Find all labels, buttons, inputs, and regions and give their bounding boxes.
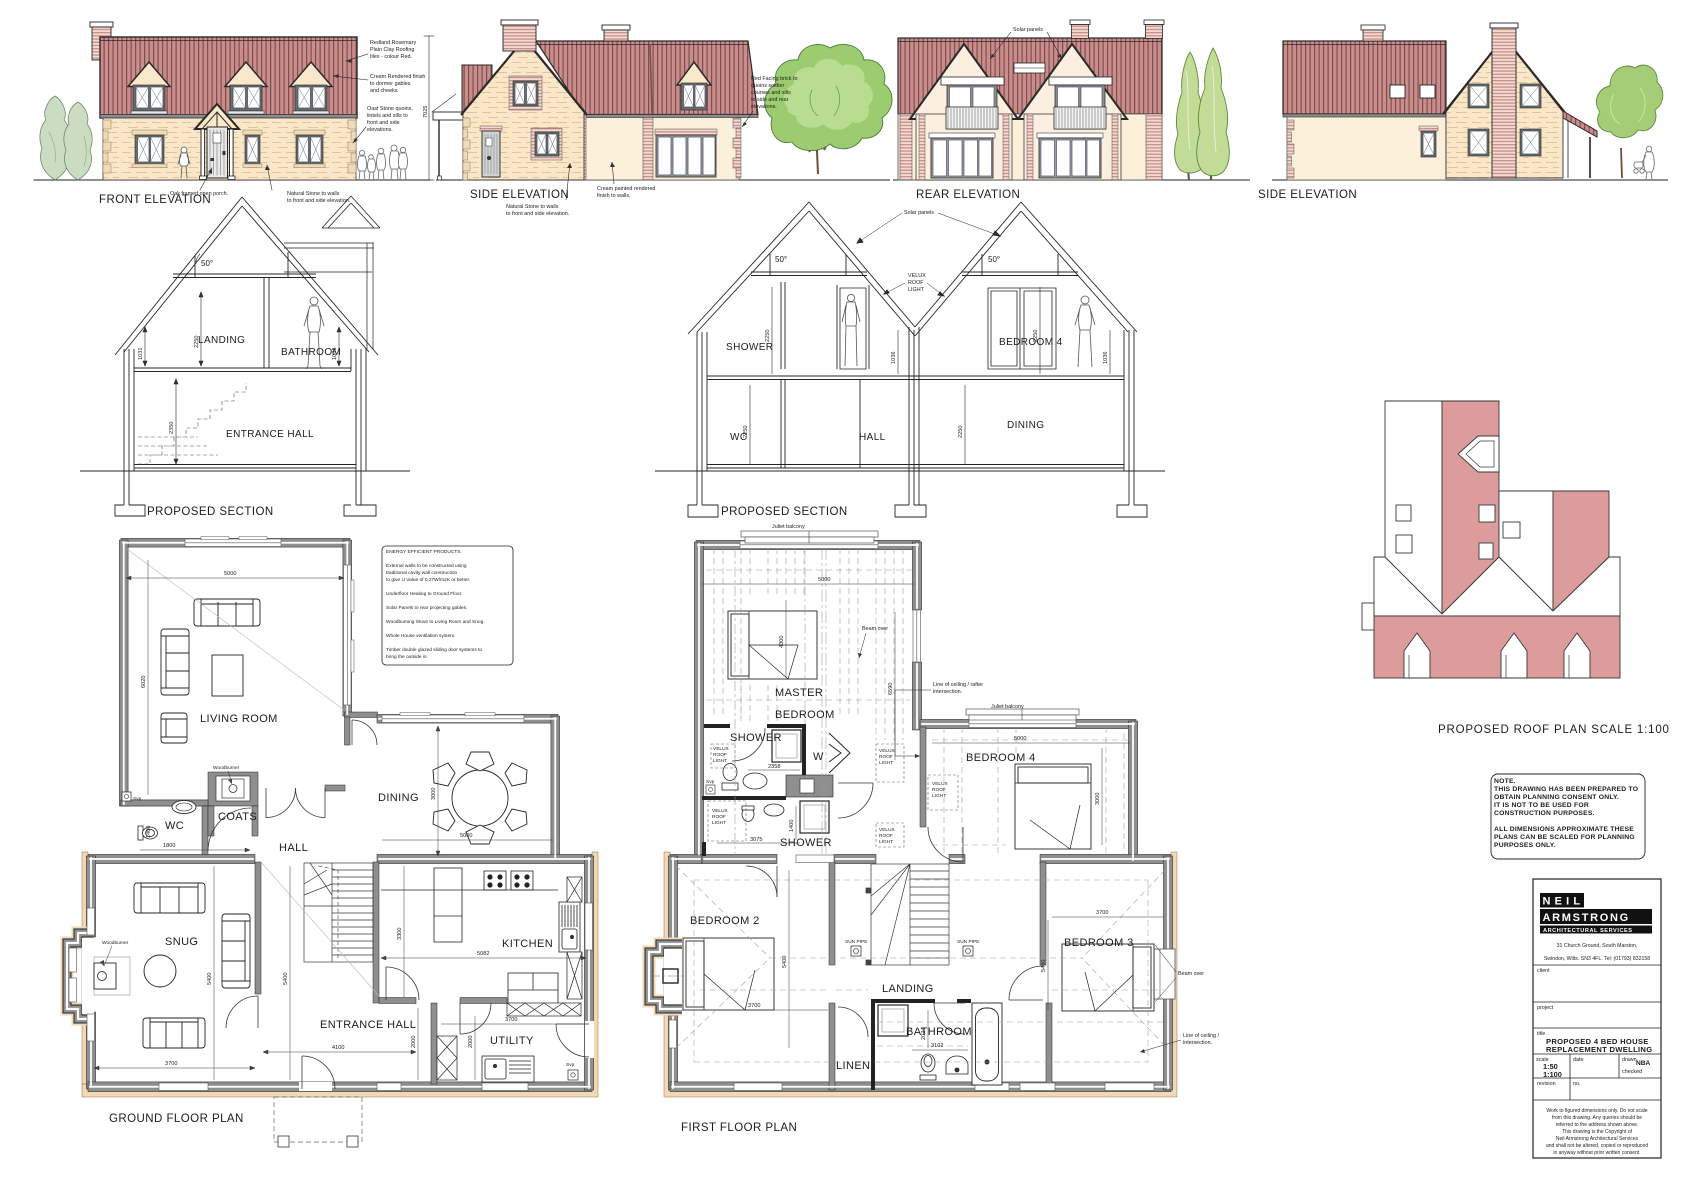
svg-text:MASTER: MASTER	[775, 687, 823, 699]
svg-text:LINEN: LINEN	[836, 1060, 870, 1072]
svg-text:PURPOSES ONLY.: PURPOSES ONLY.	[1494, 842, 1556, 849]
svg-text:VELUX: VELUX	[932, 781, 949, 787]
svg-text:2350: 2350	[169, 422, 175, 434]
svg-text:50°: 50°	[201, 259, 213, 268]
svg-text:5082: 5082	[477, 951, 489, 957]
svg-text:and shall not be altered, copi: and shall not be altered, copied or repr…	[1546, 1143, 1648, 1149]
svg-text:2250: 2250	[765, 330, 771, 342]
svg-text:FIRST FLOOR PLAN: FIRST FLOOR PLAN	[681, 1122, 797, 1134]
svg-text:1400: 1400	[789, 820, 795, 832]
svg-text:SUN PIPE: SUN PIPE	[845, 939, 867, 945]
svg-text:courses and sills: courses and sills	[751, 90, 791, 96]
svg-text:BATHROOM: BATHROOM	[281, 347, 341, 358]
svg-text:NEIL: NEIL	[1543, 896, 1585, 908]
svg-text:Svp: Svp	[133, 796, 142, 802]
svg-text:50°: 50°	[988, 255, 1000, 264]
svg-text:Whole House ventilation system: Whole House ventilation system.	[386, 633, 456, 639]
svg-text:no.: no.	[1573, 1081, 1581, 1087]
svg-text:3700: 3700	[165, 1061, 177, 1067]
svg-text:Cream painted rendered: Cream painted rendered	[597, 186, 655, 192]
svg-text:ROOF: ROOF	[713, 752, 727, 758]
svg-text:Line of ceiling / rafter: Line of ceiling / rafter	[933, 682, 983, 688]
svg-text:VELUX: VELUX	[908, 273, 926, 279]
svg-text:ROOF: ROOF	[879, 833, 893, 839]
svg-text:Woodburner: Woodburner	[213, 765, 240, 771]
svg-text:Oast Stone quoins,: Oast Stone quoins,	[367, 106, 413, 112]
svg-text:to front and side elevation.: to front and side elevation.	[506, 211, 569, 217]
svg-text:BEDROOM 3: BEDROOM 3	[1064, 937, 1134, 949]
svg-text:and cheeks: and cheeks	[370, 88, 398, 94]
svg-text:2250: 2250	[958, 426, 964, 438]
svg-text:drawn: drawn	[1622, 1057, 1637, 1063]
svg-text:SHOWER: SHOWER	[780, 837, 832, 849]
svg-text:W: W	[813, 751, 824, 763]
svg-text:intersection.: intersection.	[933, 689, 962, 695]
svg-text:LIGHT: LIGHT	[908, 287, 925, 293]
svg-text:5400: 5400	[1041, 960, 1047, 972]
svg-text:Red Facing brick to: Red Facing brick to	[751, 76, 797, 82]
svg-text:LIGHT: LIGHT	[713, 758, 727, 764]
svg-text:50°: 50°	[775, 255, 787, 264]
svg-text:Timber double glazed sliding d: Timber double glazed sliding door system…	[386, 647, 482, 653]
svg-text:1036: 1036	[1103, 352, 1109, 364]
svg-text:Natural Stone to walls: Natural Stone to walls	[506, 204, 559, 210]
svg-text:ROOF: ROOF	[908, 280, 924, 286]
svg-text:5000: 5000	[460, 833, 472, 839]
svg-text:SNUG: SNUG	[165, 936, 198, 948]
svg-text:quoins soldier: quoins soldier	[751, 83, 784, 89]
svg-text:in anyway without prior writte: in anyway without prior written consent.	[1553, 1150, 1640, 1156]
svg-text:traditional cavity wall constr: traditional cavity wall construction	[386, 570, 458, 576]
svg-text:1400: 1400	[146, 826, 152, 838]
svg-text:BEDROOM 2: BEDROOM 2	[690, 915, 760, 927]
svg-text:Natural Stone to walls: Natural Stone to walls	[287, 191, 340, 197]
svg-text:date: date	[1573, 1057, 1584, 1063]
svg-text:SUN PIPE: SUN PIPE	[957, 939, 979, 945]
svg-text:2000: 2000	[468, 1036, 474, 1048]
svg-text:1036: 1036	[891, 352, 897, 364]
svg-text:Underfloor Heating to Ground F: Underfloor Heating to Ground Floor.	[386, 591, 462, 597]
svg-text:2000: 2000	[411, 1036, 417, 1048]
svg-text:WC: WC	[165, 820, 184, 832]
svg-text:SIDE ELEVATION: SIDE ELEVATION	[1258, 189, 1357, 201]
svg-text:client: client	[1537, 968, 1550, 974]
svg-text:ENTRANCE HALL: ENTRANCE HALL	[226, 429, 314, 440]
svg-text:1800: 1800	[163, 843, 175, 849]
svg-text:checked: checked	[1622, 1069, 1642, 1075]
svg-text:5400: 5400	[207, 973, 213, 985]
svg-text:PLANS CAN BE SCALED FOR PLANNI: PLANS CAN BE SCALED FOR PLANNING	[1494, 834, 1635, 841]
svg-text:LIGHT: LIGHT	[879, 760, 893, 766]
svg-text:DINING: DINING	[1007, 420, 1044, 431]
svg-text:DINING: DINING	[378, 792, 419, 804]
svg-text:LIVING ROOM: LIVING ROOM	[200, 713, 278, 725]
svg-text:finish to walls.: finish to walls.	[597, 193, 631, 199]
svg-text:FRONT ELEVATION: FRONT ELEVATION	[99, 194, 211, 206]
svg-text:5400: 5400	[782, 956, 788, 968]
svg-text:to give U Value of 0.27W/m2K o: to give U Value of 0.27W/m2K or better.	[386, 577, 470, 583]
svg-text:elevations.: elevations.	[367, 127, 393, 133]
svg-text:1031: 1031	[138, 348, 144, 360]
svg-text:3700: 3700	[1096, 910, 1108, 916]
svg-text:Redland Rosemary: Redland Rosemary	[370, 40, 416, 46]
svg-text:SHOWER: SHOWER	[726, 342, 773, 353]
svg-text:HALL: HALL	[279, 842, 308, 854]
svg-text:WC: WC	[730, 432, 747, 443]
svg-text:referred to the address shown: referred to the address shown above.	[1556, 1122, 1639, 1128]
svg-text:SHOWER: SHOWER	[730, 732, 782, 744]
svg-text:PROPOSED SECTION: PROPOSED SECTION	[147, 506, 274, 518]
svg-text:Solar panels: Solar panels	[1013, 27, 1043, 33]
svg-text:OBTAIN PLANNING CONSENT ONLY.: OBTAIN PLANNING CONSENT ONLY.	[1494, 794, 1619, 801]
svg-text:5000: 5000	[818, 577, 830, 583]
svg-text:3300: 3300	[397, 928, 403, 940]
svg-text:front and side: front and side	[367, 120, 400, 126]
svg-text:BEDROOM: BEDROOM	[775, 709, 835, 721]
svg-text:elevations.: elevations.	[751, 104, 777, 110]
svg-text:7025: 7025	[423, 106, 429, 118]
svg-text:ARMSTRONG: ARMSTRONG	[1543, 912, 1630, 924]
svg-text:31 Church Ground, South Marsto: 31 Church Ground, South Marston,	[1557, 943, 1638, 949]
svg-text:title: title	[1537, 1031, 1545, 1037]
svg-text:BATHROOM: BATHROOM	[906, 1026, 972, 1038]
svg-text:6590: 6590	[888, 683, 894, 695]
svg-text:NBA: NBA	[1636, 1060, 1651, 1067]
svg-text:3000: 3000	[431, 788, 437, 800]
svg-text:VELUX: VELUX	[712, 808, 729, 814]
svg-text:ENERGY EFFICIENT PRODUCTS.: ENERGY EFFICIENT PRODUCTS.	[386, 549, 462, 555]
svg-text:Juliet balcony: Juliet balcony	[772, 524, 805, 530]
svg-text:intersection.: intersection.	[1183, 1040, 1212, 1046]
svg-text:NOTE.: NOTE.	[1494, 778, 1516, 785]
svg-text:Work to figured dimensions onl: Work to figured dimensions only. Do not …	[1546, 1108, 1647, 1114]
svg-text:ALL DIMENSIONS APPROXIMATE THE: ALL DIMENSIONS APPROXIMATE THESE	[1494, 826, 1634, 833]
svg-text:PROPOSED ROOF PLAN SCALE 1:100: PROPOSED ROOF PLAN SCALE 1:100	[1438, 724, 1670, 736]
svg-text:HALL: HALL	[859, 432, 886, 443]
svg-text:Juliet balcony: Juliet balcony	[991, 704, 1024, 710]
svg-text:2358: 2358	[768, 764, 780, 770]
svg-text:from this drawing. Any queries: from this drawing. Any queries should be	[1552, 1115, 1642, 1121]
svg-text:LANDING: LANDING	[198, 335, 245, 346]
svg-text:5000: 5000	[1014, 736, 1026, 742]
svg-text:6020: 6020	[141, 676, 147, 688]
svg-text:IT IS NOT TO BE USED FOR: IT IS NOT TO BE USED FOR	[1494, 802, 1589, 809]
svg-text:bring the outside in.: bring the outside in.	[386, 654, 428, 660]
svg-text:External walls to be construct: External walls to be constructed using	[386, 563, 467, 569]
svg-text:Neil Armstrong Architectural S: Neil Armstrong Architectural Services	[1556, 1136, 1639, 1142]
svg-text:ENTRANCE HALL: ENTRANCE HALL	[320, 1019, 416, 1031]
svg-text:5000: 5000	[224, 571, 236, 577]
svg-text:4300: 4300	[779, 636, 785, 648]
svg-text:LIGHT: LIGHT	[879, 839, 893, 845]
svg-text:5400: 5400	[283, 973, 289, 985]
svg-text:VELUX: VELUX	[879, 748, 896, 754]
svg-text:PROPOSED SECTION: PROPOSED SECTION	[721, 506, 848, 518]
svg-text:SIDE ELEVATION: SIDE ELEVATION	[470, 189, 569, 201]
svg-text:Woodburner: Woodburner	[102, 940, 129, 946]
svg-text:COATS: COATS	[218, 811, 257, 823]
svg-text:VELUX: VELUX	[713, 746, 730, 752]
svg-text:lintels and sills to: lintels and sills to	[367, 113, 408, 119]
svg-text:3075: 3075	[750, 837, 762, 843]
svg-text:3700: 3700	[748, 1003, 760, 1009]
svg-text:Line of ceiling /: Line of ceiling /	[1183, 1033, 1219, 1039]
svg-text:Svp: Svp	[706, 779, 715, 785]
svg-text:REAR ELEVATION: REAR ELEVATION	[916, 189, 1020, 201]
svg-text:ROOF: ROOF	[879, 754, 893, 760]
svg-text:Swindon, Wilts. SN3 4FL. Tel:: Swindon, Wilts. SN3 4FL. Tel: (01793) 83…	[1544, 956, 1650, 962]
svg-text:BEDROOM 4: BEDROOM 4	[966, 752, 1036, 764]
svg-text:tiles - colour Red.: tiles - colour Red.	[370, 54, 412, 60]
svg-text:Svp: Svp	[566, 1062, 575, 1068]
svg-text:Beam over: Beam over	[1178, 971, 1204, 977]
svg-text:ROOF: ROOF	[712, 814, 726, 820]
svg-text:Cream Rendered finish: Cream Rendered finish	[370, 74, 425, 80]
svg-text:This drawing is the Copyright: This drawing is the Copyright of	[1562, 1129, 1633, 1135]
svg-text:Solar Panels to rear projectin: Solar Panels to rear projecting gables.	[386, 605, 467, 611]
svg-text:Woodburning Stove to Living Ro: Woodburning Stove to Living Room and Snu…	[386, 619, 485, 625]
svg-text:BEDROOM 4: BEDROOM 4	[999, 337, 1063, 348]
svg-text:LANDING: LANDING	[882, 983, 934, 995]
svg-text:project: project	[1537, 1005, 1554, 1011]
svg-text:Solar panels: Solar panels	[904, 210, 934, 216]
svg-text:Plain Clay Roofing: Plain Clay Roofing	[370, 47, 414, 53]
svg-text:to front and side elevation.: to front and side elevation.	[287, 198, 350, 204]
svg-text:to side and rear: to side and rear	[751, 97, 789, 103]
svg-text:3102: 3102	[931, 1043, 943, 1049]
svg-text:3700: 3700	[505, 1017, 517, 1023]
svg-text:GROUND FLOOR PLAN: GROUND FLOOR PLAN	[109, 1113, 244, 1125]
svg-text:revision: revision	[1537, 1081, 1556, 1087]
svg-text:to dormer gables: to dormer gables	[370, 81, 411, 87]
svg-text:REPLACEMENT DWELLING: REPLACEMENT DWELLING	[1546, 1045, 1652, 1054]
svg-text:KITCHEN: KITCHEN	[502, 938, 553, 950]
svg-text:THIS DRAWING HAS BEEN PREPARED: THIS DRAWING HAS BEEN PREPARED TO	[1494, 786, 1638, 793]
svg-text:CONSTRUCTION PURPOSES.: CONSTRUCTION PURPOSES.	[1494, 810, 1595, 817]
svg-text:3000: 3000	[1095, 793, 1101, 805]
svg-text:LIGHT: LIGHT	[712, 820, 726, 826]
svg-text:UTILITY: UTILITY	[490, 1035, 534, 1047]
svg-text:Beam over: Beam over	[862, 626, 888, 632]
svg-text:4100: 4100	[332, 1045, 344, 1051]
svg-text:VELUX: VELUX	[879, 827, 896, 833]
svg-text:ARCHITECTURAL SERVICES: ARCHITECTURAL SERVICES	[1543, 928, 1633, 934]
